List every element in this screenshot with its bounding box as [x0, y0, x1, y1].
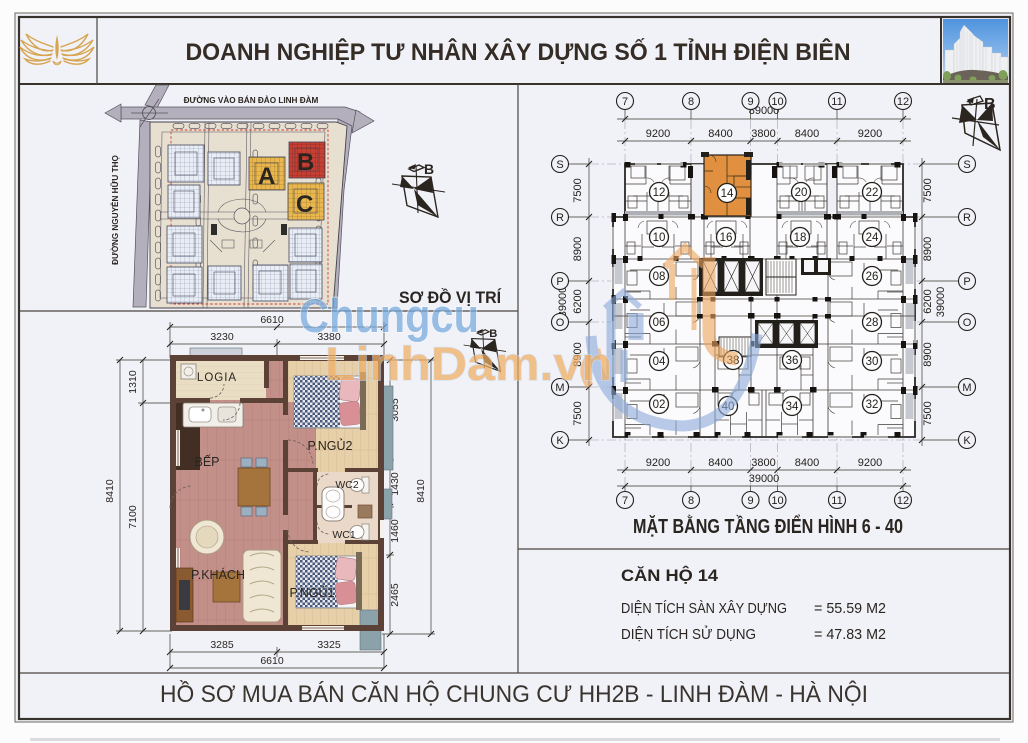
svg-text:O: O: [963, 317, 972, 329]
svg-text:R: R: [556, 212, 564, 224]
svg-text:R: R: [963, 212, 971, 224]
svg-text:LinhDam.vn: LinhDam.vn: [325, 337, 612, 390]
svg-text:12: 12: [897, 495, 909, 507]
svg-text:S: S: [963, 159, 970, 171]
svg-text:DIỆN TÍCH SÀN XÂY DỰNG: DIỆN TÍCH SÀN XÂY DỰNG: [621, 600, 787, 617]
svg-text:3230: 3230: [210, 331, 234, 343]
svg-text:9: 9: [747, 495, 753, 507]
svg-text:16: 16: [720, 232, 733, 244]
svg-text:10: 10: [771, 96, 783, 108]
svg-text:B: B: [424, 161, 434, 177]
svg-text:9: 9: [747, 96, 753, 108]
svg-text:28: 28: [866, 317, 879, 329]
svg-text:24: 24: [866, 232, 879, 244]
svg-text:ĐƯỜNG VÀO BÁN ĐẢO LINH ĐÀM: ĐƯỜNG VÀO BÁN ĐẢO LINH ĐÀM: [184, 94, 319, 105]
svg-text:WC1: WC1: [332, 529, 355, 541]
svg-text:7: 7: [622, 495, 628, 507]
svg-text:8900: 8900: [922, 342, 934, 366]
svg-text:20: 20: [795, 187, 808, 199]
svg-text:11: 11: [831, 96, 842, 108]
svg-text:8400: 8400: [795, 128, 819, 140]
svg-text:8: 8: [688, 495, 694, 507]
svg-text:7500: 7500: [572, 178, 584, 202]
svg-text:8410: 8410: [415, 479, 427, 503]
svg-text:A: A: [258, 163, 275, 190]
svg-text:6610: 6610: [260, 314, 284, 326]
svg-text:18: 18: [794, 232, 807, 244]
svg-text:39000: 39000: [557, 287, 569, 318]
svg-text:7500: 7500: [922, 401, 934, 425]
svg-text:12: 12: [897, 96, 909, 108]
svg-text:Chungcu: Chungcu: [299, 289, 479, 342]
svg-text:3800: 3800: [751, 128, 775, 140]
svg-text:LOGIA: LOGIA: [197, 372, 237, 384]
svg-text:6610: 6610: [260, 655, 284, 667]
svg-text:8410: 8410: [104, 479, 116, 503]
svg-text:7: 7: [622, 96, 628, 108]
svg-text:3285: 3285: [210, 639, 234, 651]
svg-text:P.NGỦ1: P.NGỦ1: [290, 585, 335, 600]
svg-text:30: 30: [866, 356, 879, 368]
svg-text:06: 06: [653, 317, 666, 329]
svg-text:39000: 39000: [935, 287, 947, 318]
svg-text:32: 32: [866, 399, 879, 411]
svg-text:DIỆN TÍCH SỬ DỤNG: DIỆN TÍCH SỬ DỤNG: [621, 625, 756, 643]
svg-text:22: 22: [866, 187, 879, 199]
svg-text:CĂN HỘ 14: CĂN HỘ 14: [621, 566, 719, 585]
svg-text:02: 02: [653, 399, 666, 411]
svg-text:26: 26: [866, 271, 879, 283]
svg-text:6200: 6200: [922, 289, 934, 313]
svg-text:M: M: [962, 382, 971, 394]
svg-text:P.NGỦ2: P.NGỦ2: [308, 438, 353, 453]
svg-text:WC2: WC2: [335, 479, 358, 491]
svg-text:2465: 2465: [389, 583, 401, 607]
svg-text:1460: 1460: [389, 519, 401, 543]
svg-text:10: 10: [653, 232, 666, 244]
svg-text:34: 34: [786, 401, 799, 413]
svg-text:11: 11: [831, 495, 842, 507]
svg-text:HỒ SƠ MUA BÁN CĂN HỘ CHUNG CƯ: HỒ SƠ MUA BÁN CĂN HỘ CHUNG CƯ HH2B - LIN…: [160, 680, 868, 708]
svg-text:DOANH NGHIỆP TƯ NHÂN XÂY DỰNG: DOANH NGHIỆP TƯ NHÂN XÂY DỰNG SỐ 1 TỈNH …: [186, 37, 851, 66]
svg-text:04: 04: [653, 356, 666, 368]
svg-text:39000: 39000: [749, 473, 780, 485]
svg-text:7500: 7500: [922, 178, 934, 202]
svg-text:9200: 9200: [646, 457, 670, 469]
svg-text:BẾP: BẾP: [194, 454, 219, 469]
svg-text:P: P: [963, 276, 970, 288]
svg-text:S: S: [556, 159, 563, 171]
svg-text:8: 8: [688, 96, 694, 108]
svg-text:8900: 8900: [572, 237, 584, 261]
svg-text:9200: 9200: [646, 128, 670, 140]
svg-text:08: 08: [653, 271, 666, 283]
svg-text:12: 12: [653, 187, 666, 199]
svg-text:9200: 9200: [858, 457, 882, 469]
svg-text:3800: 3800: [751, 457, 775, 469]
svg-text:K: K: [963, 435, 971, 447]
svg-text:C: C: [296, 191, 313, 218]
svg-text:9200: 9200: [858, 128, 882, 140]
svg-text:6200: 6200: [572, 289, 584, 313]
svg-text:P.KHÁCH: P.KHÁCH: [191, 567, 245, 582]
svg-text:8400: 8400: [708, 457, 732, 469]
svg-text:O: O: [556, 317, 565, 329]
svg-text:B: B: [297, 149, 314, 176]
svg-text:14: 14: [721, 188, 734, 200]
svg-text:7100: 7100: [127, 505, 139, 529]
svg-text:= 55.59 M2: = 55.59 M2: [814, 600, 886, 617]
svg-text:MẶT BẰNG TẦNG ĐIỂN HÌNH 6 - 40: MẶT BẰNG TẦNG ĐIỂN HÌNH 6 - 40: [633, 514, 903, 538]
svg-text:ĐƯỜNG NGUYỄN HỮU THỌ: ĐƯỜNG NGUYỄN HỮU THỌ: [109, 155, 120, 265]
svg-text:8400: 8400: [795, 457, 819, 469]
svg-text:K: K: [556, 435, 564, 447]
svg-text:3325: 3325: [317, 639, 341, 651]
svg-text:P: P: [556, 276, 563, 288]
svg-text:36: 36: [786, 355, 799, 367]
svg-text:8900: 8900: [922, 237, 934, 261]
svg-text:7500: 7500: [572, 401, 584, 425]
svg-text:10: 10: [771, 495, 783, 507]
svg-text:B: B: [984, 96, 996, 113]
svg-text:= 47.83 M2: = 47.83 M2: [814, 626, 886, 643]
svg-text:8400: 8400: [708, 128, 732, 140]
svg-text:1310: 1310: [127, 370, 139, 394]
